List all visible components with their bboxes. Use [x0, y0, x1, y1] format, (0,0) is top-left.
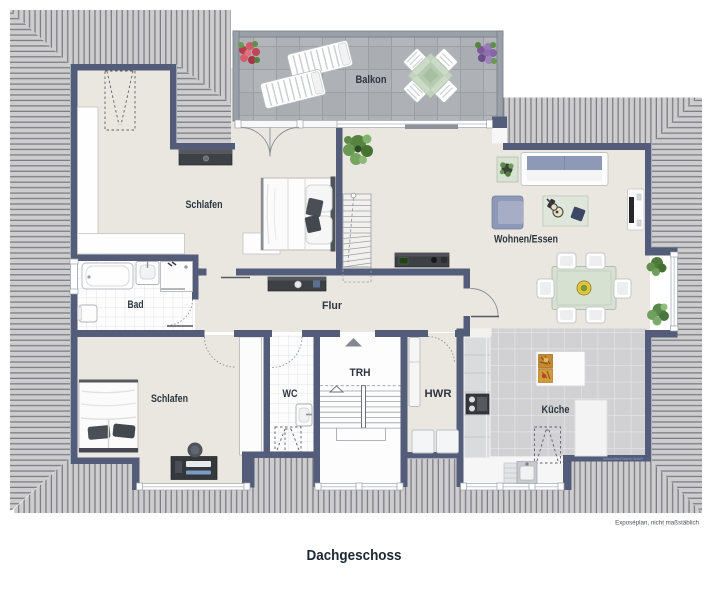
svg-text:Dachgeschoss: Dachgeschoss	[307, 548, 402, 564]
svg-text:Exposéplan, nicht maßstäblich: Exposéplan, nicht maßstäblich	[615, 520, 699, 527]
svg-text:Küche: Küche	[542, 404, 570, 416]
svg-text:TRH: TRH	[350, 367, 371, 379]
svg-text:Flur: Flur	[322, 300, 343, 312]
svg-text:Wohnen/Essen: Wohnen/Essen	[494, 234, 558, 246]
svg-text:Bad: Bad	[128, 299, 144, 311]
svg-text:Balkon: Balkon	[356, 74, 387, 86]
svg-text:Schlafen: Schlafen	[151, 393, 188, 405]
svg-text:Schlafen: Schlafen	[186, 199, 223, 211]
svg-text:ImmobilienDiskret GmbH: ImmobilienDiskret GmbH	[603, 456, 643, 461]
svg-text:HWR: HWR	[425, 388, 452, 400]
svg-text:WC: WC	[283, 388, 298, 400]
